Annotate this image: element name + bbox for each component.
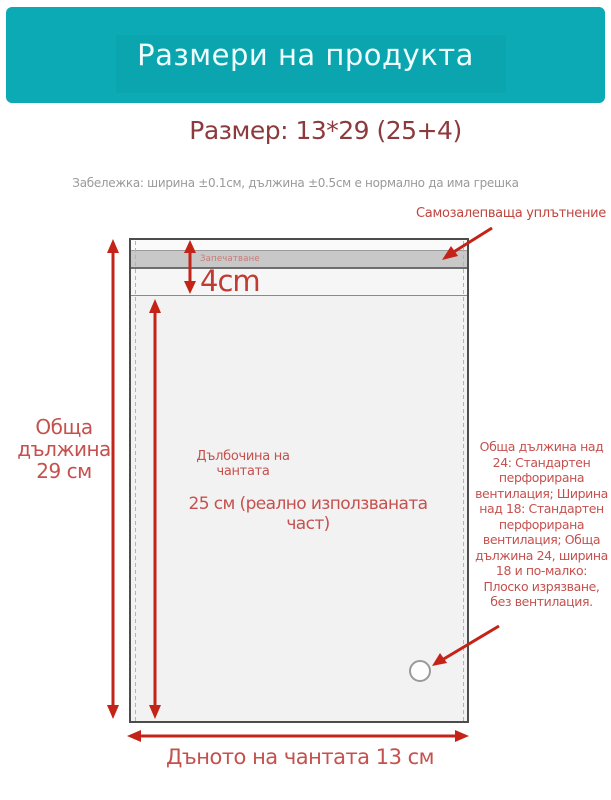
size-title: Размер: 13*29 (25+4) (0, 116, 611, 145)
flap-strip (131, 269, 467, 296)
page-title: Размери на продукта (137, 38, 474, 72)
seal-callout-label: Самозалепваща уплътнение (416, 206, 606, 221)
total-length-label: Обща дължина 29 см (4, 416, 124, 482)
tolerance-note: Забележка: ширина ±0.1см, дължина ±0.5см… (0, 176, 591, 190)
product-dimensions-page: Размери на продукта Размер: 13*29 (25+4)… (0, 0, 611, 800)
bottom-width-label: Дъното на чантата 13 см (128, 745, 472, 769)
seal-strip-label: Запечатване (200, 254, 260, 264)
ventilation-note: Обща дължина над 24: Стандартен перфорир… (472, 439, 611, 610)
depth-title: Дълбочина на чантата (183, 449, 303, 479)
bag-outline: Запечатване (129, 238, 469, 723)
seal-strip: Запечатване (131, 251, 467, 269)
depth-value: 25 см (реално използваната част) (168, 494, 448, 534)
flap-height-label: 4cm (200, 264, 260, 298)
bag-top-edge-strip (131, 240, 467, 251)
header-banner: Размери на продукта (6, 7, 605, 103)
